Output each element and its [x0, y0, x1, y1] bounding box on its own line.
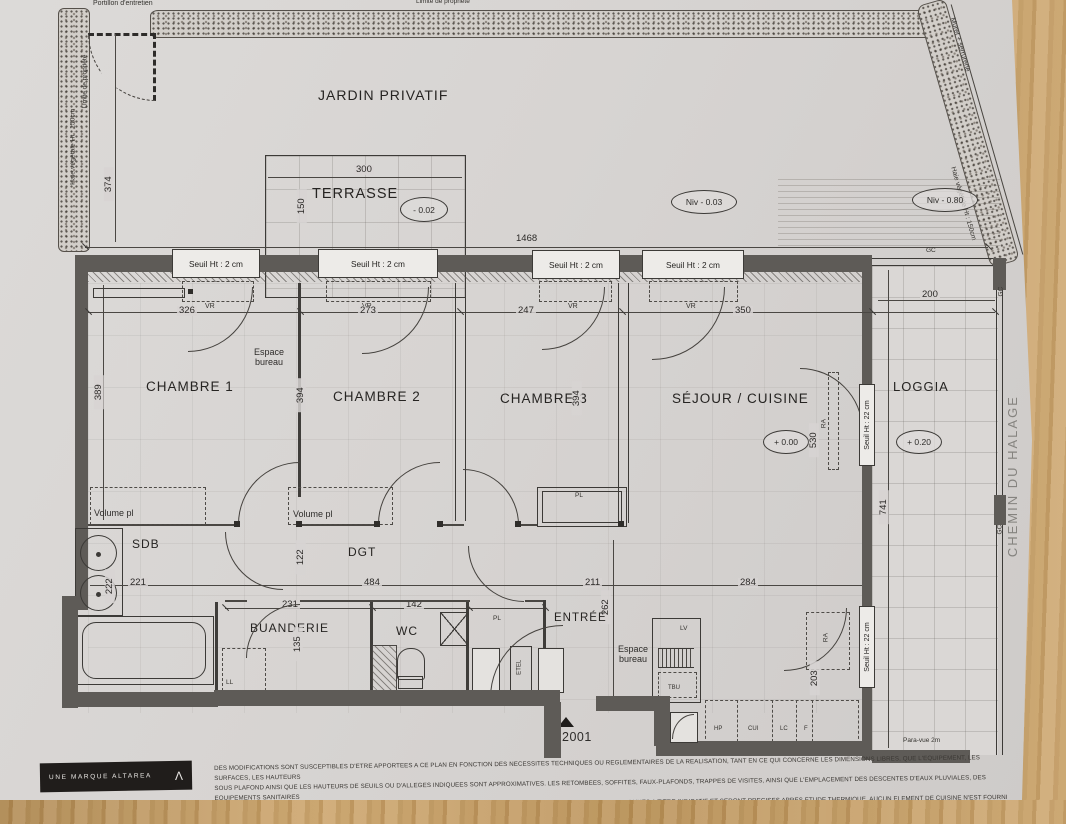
wall-entree-bottom-v [544, 702, 561, 758]
lc-label: LC [780, 726, 788, 733]
dim-326: 326 [177, 306, 197, 316]
dim-200: 200 [920, 290, 940, 300]
garden-dim-line [115, 34, 116, 242]
wall-bottom-bath [62, 692, 218, 707]
gate-swing-arc [88, 33, 156, 101]
limite-propriete-left: Limite de propriété [81, 37, 88, 127]
dim-211: 211 [583, 578, 602, 588]
technical-duct [440, 612, 469, 646]
plan-sheet: Muret + serrurerie Haie végétale Ht : 15… [0, 0, 1034, 800]
bureau-line1: Espace [618, 644, 648, 654]
counter-divider [772, 700, 773, 742]
room-label-wc: WC [396, 625, 418, 638]
ll-label: LL [226, 679, 233, 686]
wall-junction [437, 521, 443, 527]
dim-1468: 1468 [514, 234, 539, 244]
bureau-label-ch1: Espace bureau [238, 348, 300, 368]
wall-junction [234, 521, 240, 527]
pl-label-entree: PL [493, 615, 501, 622]
level-niv-080: Niv - 0.80 [912, 188, 978, 212]
room-label-entree: ENTRÉE [554, 612, 607, 625]
level-loggia: + 0.20 [896, 430, 942, 454]
dim-300: 300 [354, 165, 374, 175]
dim-350: 350 [733, 306, 753, 316]
wall-bottom-service [214, 690, 560, 706]
counter-divider [737, 700, 738, 742]
counter-divider [812, 700, 813, 742]
bureau-line1: Espace [254, 347, 284, 357]
loggia-top-rail [872, 258, 1000, 266]
loggia-floor [872, 266, 998, 755]
room-label-sdb: SDB [132, 538, 160, 551]
level-sejour: + 0.00 [763, 430, 809, 454]
dim-374: 374 [104, 167, 114, 201]
room-label-chambre-1: CHAMBRE 1 [146, 380, 234, 395]
bay-dim-line [88, 312, 995, 313]
wall-service-top-c [525, 600, 545, 602]
photo-of-floor-plan: { "site": { "garden_label": "JARDIN PRIV… [0, 0, 1066, 800]
toilet-tank [398, 676, 423, 689]
volume-pl-ch1 [90, 487, 206, 525]
brand-logo: UNE MARQUE ALTAREA Λ [40, 761, 192, 793]
wall-service-top-b [300, 600, 470, 602]
disclaimer-text: DES MODIFICATIONS SONT SUSCEPTIBLES D'ET… [214, 753, 1015, 824]
dim-273: 273 [358, 306, 378, 316]
cui-label: CUI [748, 726, 758, 733]
wall-junction [374, 521, 380, 527]
limite-propriete-top: Limite de propriété [416, 0, 470, 5]
wall-junction [515, 521, 521, 527]
brand-mark-icon: Λ [175, 768, 183, 782]
wall-junction [296, 521, 302, 527]
sdb-sink-1 [80, 535, 117, 571]
level-niv-003: Niv - 0.03 [671, 190, 737, 214]
volume-pl-ch1-label: Volume pl [94, 509, 134, 519]
hp-label: HP [714, 726, 722, 733]
label-loggia: LOGGIA [893, 380, 949, 394]
kitchen-shelf-hatch [658, 648, 694, 668]
seuil-box-3: Seuil Ht : 2 cm [532, 250, 620, 279]
paravue-label: Para-vue 2m [903, 737, 940, 744]
entree-dim-line [613, 540, 614, 700]
f-label: F [804, 726, 808, 733]
label-terrasse: TERRASSE [312, 187, 398, 203]
label-jardin-privatif: JARDIN PRIVATIF [318, 88, 448, 103]
seuil-box-1: Seuil Ht : 2 cm [172, 249, 260, 278]
gc-label-right-upper: GC [997, 284, 1004, 300]
dim-389: 389 [94, 375, 104, 409]
dim-203: 203 [810, 661, 820, 695]
terrace-dim-line [268, 177, 462, 178]
wall-corridor-top-c [440, 524, 464, 526]
dim-247: 247 [516, 306, 536, 316]
dim-284: 284 [738, 578, 758, 588]
dim-221: 221 [128, 578, 148, 588]
room-label-dgt: DGT [348, 546, 376, 559]
pl-label-ch3: PL [575, 492, 583, 499]
bureau-line2: bureau [619, 654, 647, 664]
dim-394-ch2: 394 [296, 378, 306, 412]
hedge-top [150, 10, 940, 38]
wall-entry-step-h [596, 696, 670, 711]
gc-label-right-mid: GC [996, 522, 1003, 538]
room-label-sejour: SÉJOUR / CUISINE [672, 392, 809, 407]
wc-duct-hatch [372, 645, 397, 695]
kitchen-counter [705, 700, 859, 744]
seuil-box-2: Seuil Ht : 2 cm [318, 249, 438, 278]
wall-kitchen-bottom [656, 741, 872, 756]
hedge-label-left: Haie végétale Ht : 150cm [69, 87, 76, 207]
dim-222: 222 [105, 569, 115, 603]
gc-label-top: GC [926, 247, 936, 254]
dim-394-ch3: 394 [572, 381, 582, 415]
room-label-chambre-2: CHAMBRE 2 [333, 390, 421, 405]
lv-label: LV [680, 625, 687, 632]
radiator-valve [188, 289, 193, 294]
portillon-label: Portillon d'entretien [93, 0, 153, 8]
level-terrace: - 0.02 [400, 197, 448, 222]
wall-service-top-a [225, 600, 247, 602]
wall-corridor-top-d [518, 524, 538, 526]
tbu-label: TBU [668, 685, 680, 692]
ra-label-lower: RA [822, 629, 829, 647]
low-dim-line [225, 608, 545, 609]
facade-dim-line [85, 247, 988, 248]
radiator-ch1 [93, 288, 185, 298]
dim-122: 122 [296, 540, 306, 574]
wall-junction [618, 521, 624, 527]
gravel-stripes [778, 178, 1000, 246]
seuil22-upper: Seuil Ht : 22 cm [859, 384, 875, 466]
dim-484: 484 [362, 578, 382, 588]
brand-text: UNE MARQUE ALTAREA [49, 772, 152, 781]
bureau-line2: bureau [255, 357, 283, 367]
seuil-box-4: Seuil Ht : 2 cm [642, 250, 744, 279]
dim-150: 150 [297, 189, 307, 223]
street-name: CHEMIN DU HALAGE [1006, 391, 1020, 561]
counter-divider [796, 700, 797, 742]
dim-741: 741 [879, 490, 889, 524]
seuil22-lower: Seuil Ht : 22 cm [859, 606, 875, 688]
bathtub-inner [82, 622, 206, 679]
wall-buanderie-left [215, 602, 218, 694]
